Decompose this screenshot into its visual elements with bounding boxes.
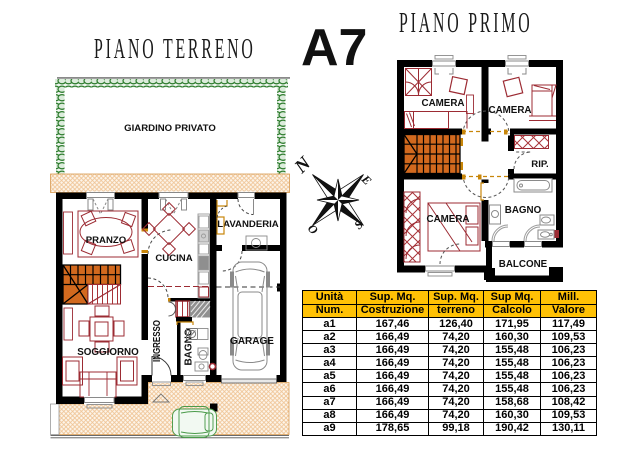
svg-text:CAMERA: CAMERA <box>489 105 532 116</box>
svg-text:PRANZO: PRANZO <box>86 235 127 246</box>
svg-text:SOGGIORNO: SOGGIORNO <box>77 347 139 358</box>
svg-text:CAMERA: CAMERA <box>422 98 465 109</box>
svg-text:INGRESSO: INGRESSO <box>152 320 163 362</box>
svg-text:CUCINA: CUCINA <box>155 253 192 264</box>
svg-text:BALCONE: BALCONE <box>499 259 548 270</box>
svg-text:GIARDINO PRIVATO: GIARDINO PRIVATO <box>124 123 216 134</box>
svg-text:GARAGE: GARAGE <box>230 336 274 347</box>
svg-text:N: N <box>290 152 316 178</box>
svg-text:BAGNO: BAGNO <box>505 205 542 216</box>
svg-text:E: E <box>358 172 374 188</box>
svg-text:CAMERA: CAMERA <box>427 214 470 225</box>
svg-text:O: O <box>305 221 321 237</box>
svg-text:LAVANDERIA: LAVANDERIA <box>217 219 279 230</box>
svg-text:RIP.: RIP. <box>531 159 548 170</box>
